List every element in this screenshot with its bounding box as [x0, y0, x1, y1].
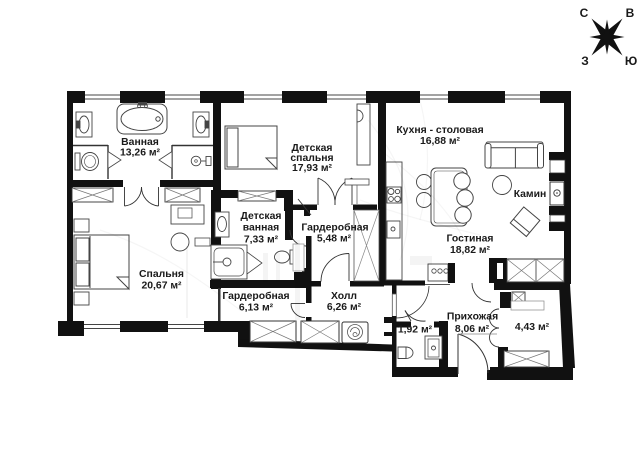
svg-text:4,43 м²: 4,43 м² — [515, 322, 550, 333]
svg-text:Камин: Камин — [514, 189, 547, 200]
svg-text:17,93 м²: 17,93 м² — [292, 163, 333, 174]
svg-text:20,67 м²: 20,67 м² — [141, 281, 182, 292]
svg-text:6,26 м²: 6,26 м² — [327, 302, 362, 313]
svg-text:Гардеробная: Гардеробная — [222, 290, 289, 302]
svg-text:Гостиная: Гостиная — [447, 234, 494, 245]
svg-text:Ю: Ю — [625, 54, 637, 68]
svg-text:З: З — [581, 54, 589, 68]
svg-text:1,92 м²: 1,92 м² — [398, 325, 433, 336]
svg-text:Холл: Холл — [331, 291, 357, 302]
svg-text:ванная: ванная — [243, 223, 279, 234]
svg-text:7,33 м²: 7,33 м² — [244, 235, 279, 246]
svg-text:Кухня - столовая: Кухня - столовая — [396, 125, 483, 136]
svg-text:В: В — [626, 6, 635, 20]
svg-text:Прихожая: Прихожая — [447, 312, 498, 323]
svg-text:8,06 м²: 8,06 м² — [455, 324, 490, 335]
svg-text:Ванная: Ванная — [121, 137, 159, 148]
svg-text:Детская: Детская — [241, 211, 282, 222]
svg-text:18,82 м²: 18,82 м² — [450, 245, 491, 256]
svg-text:13,26 м²: 13,26 м² — [120, 148, 161, 159]
svg-text:5,48 м²: 5,48 м² — [317, 234, 352, 245]
svg-text:С: С — [580, 6, 589, 20]
svg-text:Спальня: Спальня — [139, 269, 184, 280]
svg-text:6,13 м²: 6,13 м² — [239, 303, 274, 314]
svg-text:Гардеробная: Гардеробная — [301, 222, 368, 234]
